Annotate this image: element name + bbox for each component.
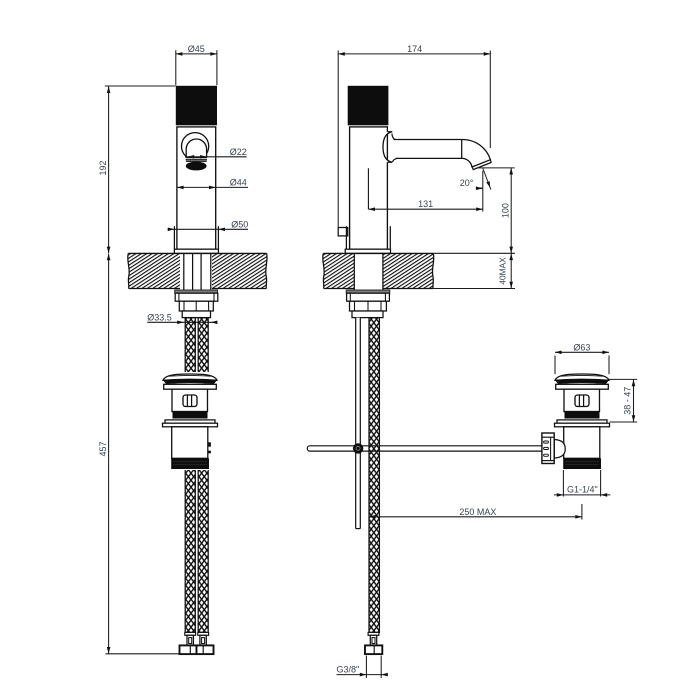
svg-text:Ø33.5: Ø33.5: [147, 312, 172, 322]
svg-text:20°: 20°: [460, 178, 474, 188]
svg-text:G1-1/4": G1-1/4": [567, 485, 598, 495]
svg-text:Ø50: Ø50: [231, 219, 248, 229]
svg-text:40MAX: 40MAX: [497, 257, 507, 285]
svg-text:131: 131: [418, 199, 433, 209]
svg-text:174: 174: [407, 44, 422, 54]
svg-text:100: 100: [500, 203, 510, 218]
svg-text:G3/8": G3/8": [337, 664, 360, 674]
svg-text:Ø63: Ø63: [573, 342, 590, 352]
svg-text:457: 457: [98, 441, 108, 456]
svg-text:Ø44: Ø44: [230, 178, 247, 188]
svg-text:Ø22: Ø22: [230, 147, 247, 157]
svg-text:192: 192: [98, 160, 108, 175]
svg-text:250 MAX: 250 MAX: [459, 507, 496, 517]
svg-text:38 - 47: 38 - 47: [623, 387, 633, 415]
svg-text:Ø45: Ø45: [188, 44, 205, 54]
